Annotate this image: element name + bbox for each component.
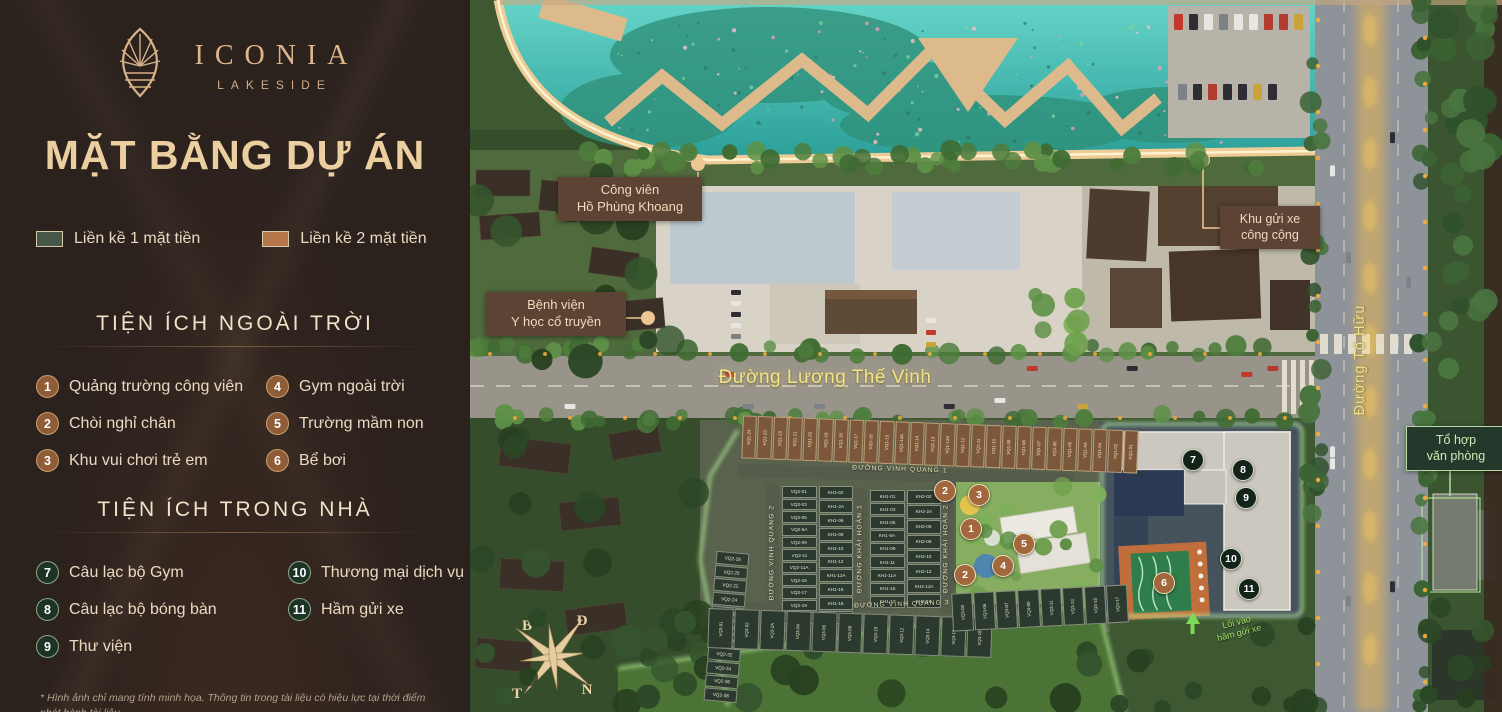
plot-VQ2-5A: VQ2-5A <box>782 524 817 536</box>
plot-VQ1-08: VQ1-08 <box>1016 426 1032 470</box>
amenity-marker-10: 10 <box>1220 548 1242 570</box>
amenity-label: Quảng trường công viên <box>69 378 243 396</box>
plot-KH1-16: KH1-16 <box>819 583 854 596</box>
legend-swatch <box>262 231 289 247</box>
plot-VQ3-10: VQ3-10 <box>863 613 889 654</box>
plot-KH1-15: KH1-15 <box>870 583 905 595</box>
plot-KH2-2A: KH2-2A <box>907 505 942 519</box>
brand-name: ICONIA <box>184 40 359 72</box>
plot-KH1-08: KH1-08 <box>819 528 854 541</box>
road-label-vinh-quang-2: ĐƯỜNG VINH QUANG 2 <box>769 478 776 628</box>
plot-KH2-06: KH2-06 <box>907 520 942 534</box>
hospital-callout: Bệnh viện Y học cổ truyền <box>486 292 626 336</box>
amenity-item-3: 3Khu vui chơi trẻ em <box>36 442 258 479</box>
plot-VQ1-14: VQ1-14 <box>909 422 925 466</box>
compass-letter-ne: Đ <box>577 613 588 629</box>
office-callout-line2: văn phòng <box>1427 449 1485 463</box>
amenity-label: Bể bơi <box>299 452 346 470</box>
plot-VQ3-17: VQ3-17 <box>1106 584 1129 623</box>
amenity-marker-7: 7 <box>1182 449 1204 471</box>
plot-VQ2-11: VQ2-11 <box>782 549 817 561</box>
amenity-item-8: 8Câu lạc bộ bóng bàn <box>36 591 280 628</box>
amenity-item-1: 1Quảng trường công viên <box>36 368 258 405</box>
amenity-marker-8: 8 <box>1232 459 1254 481</box>
amenity-label: Trường mầm non <box>299 415 424 433</box>
amenity-marker-11: 11 <box>1238 578 1260 600</box>
amenity-item-6: 6Bể bơi <box>266 442 448 479</box>
plot-VQ2-11A: VQ2-11A <box>782 562 817 574</box>
amenity-number-badge: 11 <box>288 598 311 621</box>
amenity-item-4: 4Gym ngoài trời <box>266 368 448 405</box>
plot-VQ1-22: VQ1-22 <box>772 417 788 461</box>
amenity-marker-4: 4 <box>992 555 1014 577</box>
plot-VQ3-02: VQ3-02 <box>733 609 759 650</box>
park-callout-line2: Hồ Phùng Khoang <box>577 199 683 214</box>
amenity-label: Chòi nghỉ chân <box>69 415 176 433</box>
parking-callout-line1: Khu gửi xe <box>1240 212 1301 226</box>
plot-VQ3-15: VQ3-15 <box>1084 586 1107 625</box>
parking-callout-line2: công cộng <box>1241 228 1299 242</box>
amenity-number-badge: 8 <box>36 598 59 621</box>
plot-VQ3-14: VQ3-14 <box>915 615 941 656</box>
info-panel: ICONIA LAKESIDE MẶT BẰNG DỰ ÁN Liền kề 1… <box>0 0 470 712</box>
plot-VQ1-4A: VQ1-4A <box>1077 428 1093 472</box>
plot-VQ1-11: VQ1-11 <box>970 424 986 468</box>
amenity-item-2: 2Chòi nghỉ chân <box>36 405 258 442</box>
main-road-label: Đường Lương Thế Vinh <box>675 367 975 389</box>
amenity-marker-3: 3 <box>968 484 990 506</box>
legend-label: Liền kề 1 mặt tiền <box>74 230 200 248</box>
legend: Liền kề 1 mặt tiềnLiền kề 2 mặt tiền <box>36 230 436 248</box>
lotus-leaf-icon <box>112 26 168 105</box>
plot-VQ1-21: VQ1-21 <box>787 417 803 461</box>
plot-KH1-01: KH1-01 <box>870 490 905 502</box>
plot-KH1-5A: KH1-5A <box>870 530 905 542</box>
amenity-number-badge: 1 <box>36 375 59 398</box>
plot-VQ1-12: VQ1-12 <box>955 424 971 468</box>
plot-KH1-06: KH1-06 <box>819 514 854 527</box>
plot-VQ1-20: VQ1-20 <box>802 418 818 462</box>
amenity-item-7: 7Câu lạc bộ Gym <box>36 554 280 591</box>
indoor-heading: TIỆN ÍCH TRONG NHÀ <box>0 498 470 522</box>
amenity-marker-9: 9 <box>1235 487 1257 509</box>
frame-top <box>500 0 1502 5</box>
plot-KH2-12: KH2-12 <box>907 564 942 578</box>
amenity-number-badge: 7 <box>36 561 59 584</box>
plot-VQ1-06: VQ1-06 <box>1046 427 1062 471</box>
hospital-callout-line2: Y học cổ truyền <box>511 314 601 329</box>
plot-VQ1-23: VQ1-23 <box>757 416 773 460</box>
plot-VQ1-01: VQ1-01 <box>1123 430 1139 474</box>
disclaimer-line2: phát hành tài liệu. <box>40 706 440 712</box>
plot-VQ1-09: VQ1-09 <box>1001 425 1017 469</box>
plot-KH1-12A: KH1-12A <box>819 569 854 582</box>
plot-VQ1-02: VQ1-02 <box>1107 429 1123 473</box>
legend-item-1: Liền kề 1 mặt tiền <box>36 230 200 248</box>
plot-VQ3-09: VQ3-09 <box>1017 589 1040 628</box>
plot-VQ2-05: VQ2-05 <box>782 511 817 523</box>
office-callout-line1: Tổ hợp <box>1436 433 1476 447</box>
park-callout: Công viên Hồ Phùng Khoang <box>558 177 702 221</box>
plot-VQ1-13: VQ1-13 <box>924 422 940 466</box>
plot-KH1-12: KH1-12 <box>819 556 854 569</box>
compass-letter-sw: T <box>512 686 522 702</box>
plot-VQ3-01: VQ3-01 <box>707 608 733 649</box>
plot-block-middle: KH1-01KH1-03KH1-05KH1-5AKH1-09KH1-11KH1-… <box>870 490 941 608</box>
plot-KH1-10: KH1-10 <box>819 542 854 555</box>
amenity-label: Thương mại dịch vụ <box>321 564 464 582</box>
plot-VQ2-17: VQ2-17 <box>782 587 817 599</box>
amenity-marker-6: 6 <box>1153 572 1175 594</box>
indoor-amenities-list: 7Câu lạc bộ Gym8Câu lạc bộ bóng bàn9Thư … <box>36 554 448 665</box>
amenity-label: Hầm gửi xe <box>321 601 404 619</box>
plot-VQ1-05: VQ1-05 <box>1062 428 1078 472</box>
plot-KH2-10: KH2-10 <box>907 550 942 564</box>
amenity-item-10: 10Thương mại dịch vụ <box>288 554 464 591</box>
amenity-number-badge: 2 <box>36 412 59 435</box>
park-callout-line1: Công viên <box>601 182 660 197</box>
amenity-marker-5: 5 <box>1013 533 1035 555</box>
amenity-marker-2: 2 <box>954 564 976 586</box>
amenity-label: Gym ngoài trời <box>299 378 405 396</box>
masterplan-page: ICONIA LAKESIDE MẶT BẰNG DỰ ÁN Liền kề 1… <box>0 0 1502 712</box>
plot-KH1-05: KH1-05 <box>870 516 905 528</box>
plot-column: KH2-02KH2-2AKH2-06KH2-08KH2-10KH2-12KH2-… <box>907 490 942 608</box>
plot-VQ2-09: VQ2-09 <box>782 537 817 549</box>
outdoor-heading: TIỆN ÍCH NGOÀI TRỜI <box>0 312 470 336</box>
plot-VQ3-04: VQ3-04 <box>785 611 811 652</box>
plot-VQ1-12A: VQ1-12A <box>940 423 956 467</box>
plot-KH2-08: KH2-08 <box>907 535 942 549</box>
plot-VQ3-06: VQ3-06 <box>811 612 837 653</box>
plot-KH1-09: KH1-09 <box>870 543 905 555</box>
amenity-marker-1: 1 <box>960 518 982 540</box>
outdoor-amenities-list: 1Quảng trường công viên2Chòi nghỉ chân3K… <box>36 368 448 479</box>
divider <box>40 346 430 347</box>
plot-KH1-02: KH1-02 <box>819 486 854 499</box>
amenity-marker-2: 2 <box>934 480 956 502</box>
plot-KH1-11A: KH1-11A <box>870 569 905 581</box>
amenity-item-9: 9Thư viện <box>36 628 280 665</box>
road-label-khai-hoan-1: ĐƯỜNG KHẢI HOÀN 1 <box>857 475 864 623</box>
disclaimer: * Hình ảnh chỉ mang tính minh họa. Thông… <box>40 691 440 712</box>
amenity-number-badge: 9 <box>36 635 59 658</box>
amenity-label: Câu lạc bộ Gym <box>69 564 184 582</box>
plot-VQ3-13: VQ3-13 <box>1062 587 1085 626</box>
legend-swatch <box>36 231 63 247</box>
amenity-number-badge: 5 <box>266 412 289 435</box>
plot-VQ1-17: VQ1-17 <box>848 420 864 464</box>
plot-KH1-2A: KH1-2A <box>819 500 854 513</box>
plot-KH1-03: KH1-03 <box>870 503 905 515</box>
legend-item-2: Liền kề 2 mặt tiền <box>262 230 426 248</box>
amenity-label: Khu vui chơi trẻ em <box>69 452 208 470</box>
divider <box>40 532 430 533</box>
plot-VQ1-04: VQ1-04 <box>1092 429 1108 473</box>
amenity-item-5: 5Trường mầm non <box>266 405 448 442</box>
page-title: MẶT BẰNG DỰ ÁN <box>0 132 470 179</box>
plot-VQ2-01: VQ2-01 <box>782 486 817 498</box>
plot-VQ2-03: VQ2-03 <box>782 499 817 511</box>
compass-letter-se: N <box>582 682 593 698</box>
plot-KH2-12A: KH2-12A <box>907 579 942 593</box>
plot-VQ1-10: VQ1-10 <box>985 425 1001 469</box>
masterplan-map: B Đ T N <box>470 0 1502 712</box>
plot-VQ1-24: VQ1-24 <box>741 415 757 459</box>
hospital-plaza <box>656 186 1082 352</box>
amenity-number-badge: 3 <box>36 449 59 472</box>
plot-VQ2-15: VQ2-15 <box>782 574 817 586</box>
right-road-label: Đường Tố Hữu <box>1352 276 1368 444</box>
parking-callout: Khu gửi xe công cộng <box>1220 206 1320 249</box>
office-callout: Tổ hợp văn phòng <box>1406 426 1502 471</box>
plot-VQ1-14A: VQ1-14A <box>894 421 910 465</box>
plot-VQ3-12: VQ3-12 <box>889 614 915 655</box>
plot-VQ3-11: VQ3-11 <box>1040 588 1063 627</box>
amenity-number-badge: 10 <box>288 561 311 584</box>
amenity-label: Câu lạc bộ bóng bàn <box>69 601 217 619</box>
plot-VQ1-19: VQ1-19 <box>818 418 834 462</box>
legend-label: Liền kề 2 mặt tiền <box>300 230 426 248</box>
brand-block: ICONIA LAKESIDE <box>0 26 470 105</box>
plot-VQ1-15: VQ1-15 <box>879 421 895 465</box>
brand-subtitle: LAKESIDE <box>210 78 332 92</box>
disclaimer-line1: * Hình ảnh chỉ mang tính minh họa. Thông… <box>40 692 425 704</box>
plot-VQ1-16: VQ1-16 <box>863 420 879 464</box>
amenity-item-11: 11Hầm gửi xe <box>288 591 464 628</box>
amenity-label: Thư viện <box>69 638 132 656</box>
amenity-number-badge: 6 <box>266 449 289 472</box>
plot-VQ1-18: VQ1-18 <box>833 419 849 463</box>
plot-VQ3-07: VQ3-07 <box>995 590 1018 629</box>
plot-KH1-11: KH1-11 <box>870 556 905 568</box>
plot-column: KH1-01KH1-03KH1-05KH1-5AKH1-09KH1-11KH1-… <box>870 490 905 608</box>
hospital-callout-line1: Bệnh viện <box>527 297 585 312</box>
amenity-number-badge: 4 <box>266 375 289 398</box>
plot-VQ1-07: VQ1-07 <box>1031 427 1047 471</box>
